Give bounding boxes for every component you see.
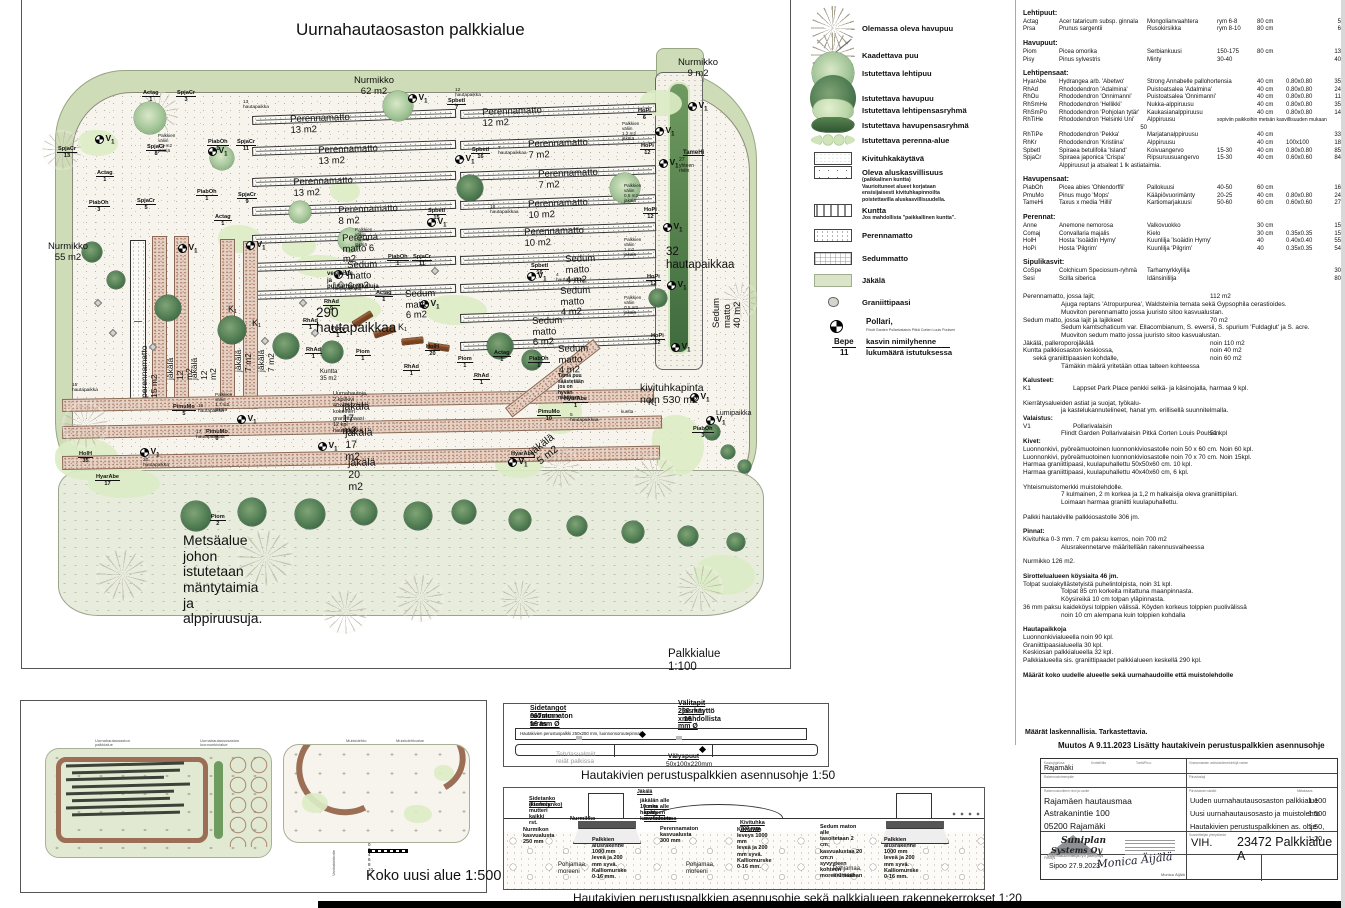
overview-green-patch-2	[404, 805, 432, 823]
plan-label: Palkkien väliin 1,7 m2 jäkälä	[215, 392, 232, 413]
plan-label: Sedum matto 4 m2	[560, 286, 591, 319]
plant-cell: 0.80x0.80	[1286, 87, 1328, 95]
overview-label: Muistolehto	[346, 739, 366, 743]
plant-cell: Spiraea betulifolia 'Island'	[1059, 148, 1147, 156]
plant-tag: PiabOh3	[88, 200, 110, 214]
plant-cell	[1217, 268, 1257, 276]
plant-tag: SpjaCr9	[237, 192, 257, 206]
note-line: Tolpat 85 cm korkeita mitattuna maanpinn…	[1023, 588, 1341, 596]
planted-conifer-icon	[238, 498, 266, 526]
detail20-label: jonka alle kohteen moreenimaa	[644, 804, 676, 822]
detail50-beam-upper: Hautakivien perustuspalkki 250x250 mm, l…	[515, 728, 807, 740]
tb-drawing-row: Uuden uurnahautausosaston palkkialue1:10…	[1190, 795, 1338, 808]
abbrev-line1: kasvin nimilyhenne	[866, 338, 950, 348]
note-text: Pinnat:	[1023, 528, 1045, 535]
detail20-label: Nurmikon kasvualusta 250 mm	[523, 827, 554, 845]
plant-row: RhSmPoRhododendron 'Pohjolan tytär'Kauka…	[1023, 110, 1341, 118]
plant-cell: 84	[1328, 155, 1341, 163]
legend-sub-note: (paikkalinen kuntta) Vaurioituneet aluee…	[862, 177, 945, 203]
detail20-label: Pohjamaa, moreeni	[686, 862, 715, 875]
plant-cell: Ripsuruusuangervo	[1147, 155, 1217, 163]
note-line: Hautapaikkoja	[1023, 626, 1341, 634]
plant-cell: Kielo	[1147, 231, 1217, 239]
plant-cell: Piom	[1023, 49, 1059, 57]
plant-cell	[1023, 125, 1059, 133]
legend-symbol-granite-icon	[810, 297, 856, 307]
plan-label: Sedum matto 6 m2	[405, 289, 436, 322]
legend-label: Kuntta	[862, 206, 886, 215]
note-line: Jäkälä, palleroporojäkälänoin 110 m2	[1023, 340, 1341, 348]
detail20-sill-right	[886, 821, 944, 828]
bollard-icon	[659, 159, 668, 168]
bollard-label: V1	[674, 221, 683, 234]
pollari-sub: Flindt Garden Pollarivalaisin Pitkä Cort…	[866, 328, 955, 332]
note-text: Kalusteet:	[1023, 377, 1054, 384]
plant-cell: 24	[1328, 193, 1341, 201]
plant-cell: 0.80x0.80	[1286, 94, 1328, 102]
tb-drawing-scale: 1:500	[1308, 808, 1326, 821]
plant-row: RhOuRhododendron 'Onnimanni'Puistoatsale…	[1023, 94, 1341, 102]
plant-tag: Actag1	[142, 90, 160, 104]
detail50-label: Välyspuut	[668, 753, 699, 760]
plan-label: kuntta	[621, 409, 633, 414]
sedum-strip-inner	[668, 82, 690, 354]
note-line: Flindt Garden Pollarivalaisin Pitkä Cort…	[1023, 430, 1341, 438]
note-line: noin 10 cm alempana kuin tolppien kohdal…	[1023, 612, 1341, 620]
planted-deciduous-icon	[289, 201, 311, 223]
plant-cell	[1286, 26, 1328, 34]
bollard-icon	[178, 244, 187, 253]
plan-label: jäkälä 12 m2	[190, 358, 219, 380]
bollard-icon	[706, 416, 715, 425]
plant-cell: Alppiruusu	[1147, 117, 1217, 125]
firm-sub: Maisemasuunnittelijat ry:n jäsenyritys	[1047, 855, 1103, 859]
plant-tag: PimuMo10	[537, 409, 561, 423]
plant-cell: 0.40x0.40	[1286, 238, 1328, 246]
tb-field-label: Piirustuksen sisältö	[1189, 789, 1216, 793]
plant-tag: SpjaCr5	[136, 198, 156, 212]
bollard-light-v1: V1	[246, 239, 266, 252]
plant-cell: rym 6-8	[1217, 19, 1257, 27]
plant-row: RhSmHeRhododendron 'Hellikki'Nukka-alppi…	[1023, 102, 1341, 110]
note-text: 7 kulmainen, 2 m korkea ja 1,2 m halkais…	[1061, 491, 1238, 498]
plant-cell: RhKr	[1023, 140, 1059, 148]
plant-row: RhAdRhododendron 'Adalmina'Puistoatsalea…	[1023, 87, 1341, 95]
overview-grave-bar	[66, 803, 184, 809]
plant-cell: Convallaria majalis	[1059, 231, 1147, 239]
plan-label: Nurmikko 55 m2	[36, 242, 100, 263]
plant-cell: Hosta 'Isoäidin Hymy'	[1059, 238, 1147, 246]
plant-tag: RhAd1	[403, 364, 420, 378]
note-lead: K1	[1023, 385, 1073, 393]
plant-row: HolHHosta 'Isoäidin Hymy'Kuunlilja 'Isoä…	[1023, 238, 1341, 246]
plant-row: RhTiPeRhododendron 'Pekka'Marjatanalppir…	[1023, 132, 1341, 140]
plant-cell: Tarhamyrkkylilja	[1147, 268, 1217, 276]
plant-cell	[1217, 94, 1257, 102]
plant-tag: PiabOh1	[387, 254, 409, 268]
plant-cell: TameHi	[1023, 200, 1059, 208]
legend-item: Istutettava perenna-alue	[810, 134, 1015, 146]
legend-item: Perennamatto	[810, 229, 1015, 242]
plant-cell	[1257, 268, 1286, 276]
plant-tag: SpbetI16	[471, 147, 490, 161]
planted-conifer-icon	[273, 333, 299, 359]
plan-label: jäkälä 7 m2	[257, 350, 276, 372]
plant-cell: 33	[1328, 132, 1341, 140]
plant-cell	[1286, 185, 1328, 193]
planted-conifer-icon	[727, 533, 745, 551]
plant-cell: 0.80x0.80	[1286, 102, 1328, 110]
plant-cell: 11	[1328, 94, 1341, 102]
plant-list: Lehtipuut:ActagAcer tataricum subsp. gin…	[1023, 4, 1341, 679]
note-line: Sirottelualueen köysiaita 46 jm.	[1023, 573, 1341, 581]
plant-cell: 60 cm	[1257, 200, 1286, 208]
note-line: Nurmikko 126 m2.	[1023, 558, 1341, 566]
plant-cell: Picea omorika	[1059, 49, 1147, 57]
plant-row: PrsaPrunus sargentiiRusokirsikkarym 8-10…	[1023, 26, 1341, 34]
plant-cell: RhAd	[1023, 87, 1059, 95]
note-line: Sedum kamtschaticum var. Ellacombianum, …	[1023, 324, 1341, 332]
plant-tag: HolH35	[78, 451, 93, 465]
pollari-icon	[830, 320, 843, 333]
note-line: Tolpat suolakyllästetyistä puhelintolpis…	[1023, 581, 1341, 589]
note-line: Luonnonkivi, pyöreämuotoinen luonnonkivi…	[1023, 446, 1341, 454]
plan-label: 5 hautapaikkaa	[570, 413, 599, 424]
tb-address: Rajamäen hautausmaa Astrakanintie 100 05…	[1044, 795, 1132, 832]
bollard-light-v1: V1	[659, 157, 679, 170]
plan-label: Palkkien väliin 1,2 m2 jäkälä	[158, 133, 175, 154]
note-text: Flindt Garden Pollarivalaisin Pitkä Cort…	[1061, 430, 1219, 437]
note-value: 51 kpl	[1210, 430, 1227, 438]
note-line: Keskiosan palkkialueella 32 kpl.	[1023, 649, 1341, 657]
planted-conifer-icon	[321, 341, 343, 363]
bollard-label: V1	[257, 239, 266, 252]
plant-cell: 18	[1328, 140, 1341, 148]
plant-cell: 40	[1257, 238, 1286, 246]
plant-tag: RhAd1	[305, 347, 322, 361]
note-value: noin 110 m2	[1210, 340, 1245, 348]
plan-label: 15 hautapaikka	[72, 383, 98, 394]
plant-tag: SpbetI16	[530, 263, 549, 277]
plant-cell: 0.80x0.80	[1286, 79, 1328, 87]
tb-field-label: Tontti/Rn:o	[1136, 761, 1151, 765]
plan-label: Palkkialue 1:100	[668, 648, 720, 674]
plant-cell	[1257, 276, 1286, 284]
note-line: Kalusteet:	[1023, 377, 1341, 385]
plant-tag: SpjaCr13	[57, 146, 77, 160]
planted-conifer-icon	[622, 521, 644, 543]
plant-cell: 85	[1328, 148, 1341, 156]
bollard-label: V1	[699, 100, 708, 113]
plant-tag: PiabOh1	[196, 189, 218, 203]
legend-label: Istutettava perenna-alue	[862, 136, 949, 145]
plant-cell: Pinus mugo 'Mops'	[1059, 193, 1147, 201]
bollard-icon	[455, 155, 464, 164]
detail20-label: Perennamaton kasvualusta 300 mm	[660, 826, 698, 844]
plant-cell: Prunus sargentii	[1059, 26, 1147, 34]
planted-conifer-icon	[107, 271, 125, 289]
tb-field-label: Rakennustoimenpide	[1044, 775, 1074, 779]
plan-label: 13 hautapaikka	[243, 100, 269, 111]
tb-field-label: Viranomaisten arkistointimerkintöjä vart…	[1189, 761, 1248, 765]
detail20-label: Käytävän leveys 1000 mm leveä ja 200 mm …	[737, 827, 772, 870]
planted-conifer-icon	[738, 460, 751, 473]
plant-cell: Pallokuusi	[1147, 185, 1217, 193]
plan-label: Perennamatto 13 m2	[293, 176, 353, 199]
existing-conifer-icon	[677, 565, 723, 611]
overview-grave-bar	[66, 790, 174, 796]
plan-label: Palkkien väliin 1 m2 jäkälä	[624, 237, 641, 258]
plant-cell: 6	[1328, 26, 1341, 34]
plan-label: Palkkien väliin 0,5 m2 jäkälä	[624, 295, 641, 316]
plant-cell: 40	[1328, 57, 1341, 65]
plant-cell: Kaukasianalppiruusu	[1147, 110, 1217, 118]
note-text: Kivituhka 0-3 mm. 7 cm paksu kerros, noi…	[1023, 536, 1167, 543]
note-text: Yhteismuistomerkki muistolehdolle.	[1023, 484, 1123, 491]
plant-cell: Minty	[1147, 57, 1217, 65]
planted-deciduous-icon	[134, 102, 166, 134]
note-text: Graniittipaasialueella 30 kpl.	[1023, 642, 1103, 649]
bollard-label: V1	[151, 446, 160, 459]
plan-label: Perennamatto 8 m2	[338, 204, 398, 227]
plant-tag: HoPi12	[643, 207, 658, 221]
planted-conifer-icon	[351, 499, 377, 525]
note-text: Sirottelualueen köysiaita 46 jm.	[1023, 573, 1118, 580]
plant-cell: RhTiHe	[1023, 117, 1059, 125]
detail20-label: Palkkien alusrakenne 1000 mm leveä ja 20…	[592, 837, 627, 880]
note-line: Muoviton perennamatto jossa juuristo sit…	[1023, 309, 1341, 317]
note-line: Luonnonkivialueella noin 90 kpl.	[1023, 634, 1341, 642]
plant-tag: RhAd1	[473, 373, 490, 387]
note-line: Harmaa graniittipaasi, kuulapuhallettu 5…	[1023, 461, 1341, 469]
note-value: 70 m2	[1210, 317, 1228, 325]
note-line: ja kastelukannutelineet, hanat ym. erill…	[1023, 407, 1341, 415]
note-text: Palkkialueella sis. graniittipaadet palk…	[1023, 657, 1202, 664]
overview-grave-bar	[66, 776, 164, 782]
legend-symbol-perennamat-icon	[810, 229, 856, 242]
plant-cell: rym 8-10	[1217, 26, 1257, 34]
existing-conifer-icon	[323, 590, 367, 634]
plan-label: jäkälä 20 m2	[348, 458, 376, 494]
bollard-light-v1: V1	[655, 125, 675, 138]
plant-section-title: Lehtipensaat:	[1023, 70, 1341, 79]
plant-cell: 40 cm	[1257, 155, 1286, 163]
plant-cell: Acer tataricum subsp. ginnala	[1059, 19, 1147, 27]
plant-cell: 15-30	[1217, 148, 1257, 156]
legend-label: Perennamatto	[862, 231, 913, 240]
plant-cell	[1217, 223, 1257, 231]
plant-cell: 16	[1328, 185, 1341, 193]
detail50-title: Hautakivien perustuspalkkien asennusohje…	[581, 769, 835, 782]
planted-conifer-icon	[457, 175, 483, 201]
note-line: Tämäkin määrä yritetään ottaa talteen ko…	[1023, 363, 1341, 371]
symbol-sedummat	[814, 252, 852, 265]
plan-label: 12 hautapaikka	[455, 88, 481, 99]
tb-signature-print: Monica Äijälä	[1161, 873, 1185, 877]
plant-cell: 80	[1328, 276, 1341, 284]
legend-divider	[1015, 0, 1016, 745]
plan-label: TameHi	[683, 150, 704, 157]
plan-title: Uurnahautaosaston palkkialue	[296, 20, 525, 39]
plant-tag: SpjaCr3	[176, 90, 196, 104]
overview-plan-right	[283, 744, 470, 843]
plant-row: ActagAcer tataricum subsp. ginnalaMongol…	[1023, 19, 1341, 27]
plant-cell: Kuunlilja 'Pilgrim'	[1147, 246, 1217, 254]
plant-cell: 40 cm	[1257, 148, 1286, 156]
overview-plan-left	[45, 748, 272, 858]
legend-label: Istutettava lehtipensasryhmä	[862, 106, 967, 115]
plant-row: PisyPinus sylvestrisMinty30-4040	[1023, 57, 1341, 65]
plan-label: Perennamatto 12 m2	[482, 106, 542, 129]
plant-cell: Valkovuokko	[1147, 223, 1217, 231]
plant-cell: HoPi	[1023, 246, 1059, 254]
plan-label: 7 hautapaikkaa	[498, 146, 527, 157]
plant-cell	[1257, 57, 1286, 65]
note-line: Kivet:	[1023, 438, 1341, 446]
detail20-beam-right	[896, 793, 932, 819]
plant-cell: sopiviin paikkoihin metsän kasvillisuude…	[1217, 117, 1328, 125]
existing-conifer-icon	[500, 580, 540, 620]
plant-cell: 13	[1328, 49, 1341, 57]
overview-grave-bar	[72, 769, 180, 775]
symbol-kuntta	[814, 204, 852, 217]
note-line: Kuntta palkkiosaston keskiossa,noin 40 m…	[1023, 347, 1341, 355]
note-value: noin 40 m2	[1210, 347, 1242, 355]
plant-cell: 0.60x0.60	[1286, 155, 1328, 163]
plant-tag: HyarAbe17	[95, 474, 120, 488]
plant-cell	[1286, 57, 1328, 65]
plant-cell: PiabOh	[1023, 185, 1059, 193]
plant-cell: 40 cm	[1257, 193, 1286, 201]
plant-cell: RhOu	[1023, 94, 1059, 102]
plant-cell: RhSmPo	[1023, 110, 1059, 118]
note-text: Kierrätysalueiden astiat ja suojat, työk…	[1023, 400, 1141, 407]
legend-label: Sedummatto	[862, 254, 908, 263]
sheet-bottom-bar	[318, 901, 1345, 908]
overview-stone-web	[228, 755, 268, 847]
plant-cell: 50-60	[1217, 200, 1257, 208]
note-line: Kierrätysalueiden astiat ja suojat, työk…	[1023, 400, 1341, 408]
legend-label: Istutettava havupensasryhmä	[862, 121, 969, 130]
note-line: Graniittipaasialueella 30 kpl.	[1023, 642, 1341, 650]
bollard-light-v1: V1	[688, 100, 708, 113]
note-line: V1Pollarivalaisin	[1023, 423, 1341, 431]
bollard-label: V1	[666, 125, 675, 138]
plant-tag: HoPi12	[646, 274, 661, 288]
note-text: Ajuga reptans 'Atropurpurea', Waldsteini…	[1061, 301, 1287, 308]
plant-row: PiabOhPicea abies 'Ohlendorffii'Pallokuu…	[1023, 185, 1341, 193]
planted-conifer-icon	[721, 445, 735, 459]
tb-date: Sipoo 27.9.2023	[1049, 863, 1100, 871]
legend-label: Graniittipaasi	[862, 298, 911, 307]
note-text: Tämäkin määrä yritetään ottaa talteen ko…	[1061, 363, 1200, 370]
plant-cell: Rhododendron 'Kristiina'	[1059, 140, 1147, 148]
plant-cell	[1217, 110, 1257, 118]
plant-cell: Strong Annabelle pallohortensia	[1147, 79, 1217, 87]
plant-cell: Puistoatsalea 'Onnimanni'	[1147, 94, 1217, 102]
note-text: Kivet:	[1023, 438, 1041, 445]
revision-note: Muutos A 9.11.2023 Lisätty hautakivein p…	[1058, 742, 1325, 751]
bollard-icon	[667, 281, 676, 290]
plant-cell: Rhododendron 'Onnimanni'	[1059, 94, 1147, 102]
legend-label: Olemassa oleva havupuu	[862, 24, 953, 33]
plan-label: perennamatto 15 m2	[140, 346, 159, 398]
note-text: Tolpat 85 cm korkeita mitattuna maanpinn…	[1061, 588, 1193, 595]
plant-cell: Pisy	[1023, 57, 1059, 65]
plant-cell: 24	[1328, 87, 1341, 95]
plant-cell: 150-175	[1217, 49, 1257, 57]
plan-label: K₁	[648, 397, 657, 407]
note-text: Pollarivalaisin	[1073, 423, 1112, 430]
tb-field-label: Piirustuslaji	[1189, 775, 1205, 779]
plant-cell: 15	[1328, 223, 1341, 231]
note-text: Loimaan harmaa graniitti kuulapuhallettu…	[1061, 499, 1178, 506]
detail50-joint-1	[614, 745, 615, 757]
plant-row: ComajConvallaria majalisKielo30 cm0.35x0…	[1023, 231, 1341, 239]
plant-cell: Rusokirsikka	[1147, 26, 1217, 34]
plant-row: SpbetISpiraea betulifolia 'Island'Koivua…	[1023, 148, 1341, 156]
plant-tag: SpjaCr11	[236, 139, 256, 153]
plant-cell: Scilla siberica	[1059, 276, 1147, 284]
title-block: KaupunginosaKortteli/tilaTontti/Rn:oVira…	[1040, 758, 1338, 880]
plant-cell: Prsa	[1023, 26, 1059, 34]
note-line: Loimaan harmaa graniitti kuulapuhallettu…	[1023, 499, 1341, 507]
plant-cell: Sesi	[1023, 276, 1059, 284]
drawing-sheet: V1V1V1V1V1V1V1V1V1V1V1V1V1V1V1V1V1V1V1V1…	[0, 0, 1345, 908]
plant-cell: 14	[1328, 110, 1341, 118]
plant-section-title: Sipulikasvit:	[1023, 259, 1341, 268]
overview-grave-bar	[72, 797, 170, 803]
overview-label: Muistolehtoalue	[396, 739, 424, 743]
note-text: Kuntta palkkiosaston keskiossa,	[1023, 347, 1114, 354]
note-text: Luonnonkivi, pyöreämuotoinen luonnonkivi…	[1023, 446, 1253, 453]
plant-cell: 20-25	[1217, 193, 1257, 201]
existing-conifer-icon	[633, 456, 677, 500]
note-text: Köysireikä 10 cm tolpan yläpinnasta.	[1061, 596, 1165, 603]
plant-cell	[1286, 268, 1328, 276]
plant-cell: 27	[1328, 200, 1341, 208]
plant-tag: Actag1	[375, 290, 393, 304]
plant-cell	[1286, 276, 1328, 284]
plant-cell: Kuunlilja 'Isoäidin Hymy'	[1147, 238, 1217, 246]
plan-label: Perennamatto 13 m2	[318, 144, 378, 167]
plant-cell: Nukka-alppiruusu	[1147, 102, 1217, 110]
plant-tag: Piom1	[457, 356, 473, 370]
plant-tag: PiabOh3	[692, 426, 714, 440]
note-text: Nurmikko 126 m2.	[1023, 558, 1075, 565]
plant-cell: SpjaCr	[1023, 155, 1059, 163]
overview-grave-bar	[72, 811, 180, 817]
plan-label: Lumipaikka	[716, 410, 751, 418]
bollard-label: V1	[189, 242, 198, 255]
tb-drawing-name: Hautakivien perustuspalkkinen as. ohje	[1190, 822, 1317, 831]
plant-cell: 0.60x0.60	[1286, 200, 1328, 208]
plant-cell: 40-50	[1217, 185, 1257, 193]
plan-label: Nurmikko 9 m2	[666, 58, 730, 79]
tb-field-label: Mittakaava	[1297, 789, 1312, 793]
detail50-label: jos käyttö mahdollista	[682, 708, 721, 724]
note-text: Lappset Park Place penkki selkä- ja käsi…	[1073, 385, 1248, 392]
plant-row: CoSpeColchicum Speciosum-ryhmäTarhamyrkk…	[1023, 268, 1341, 276]
plan-label: Perennamatto 13 m2	[290, 113, 350, 136]
plant-cell: Hosta 'Pilgrim'	[1059, 246, 1147, 254]
detail20-label: Nurmikko	[570, 816, 595, 822]
bollard-label: V1	[248, 413, 257, 426]
plant-cell: 15	[1328, 231, 1341, 239]
plant-tag: SpjaCr11	[412, 254, 432, 268]
note-text: noin 10 cm alempana kuin tolppien kohdal…	[1061, 612, 1185, 619]
plant-tag: SpbetI7	[447, 98, 466, 112]
